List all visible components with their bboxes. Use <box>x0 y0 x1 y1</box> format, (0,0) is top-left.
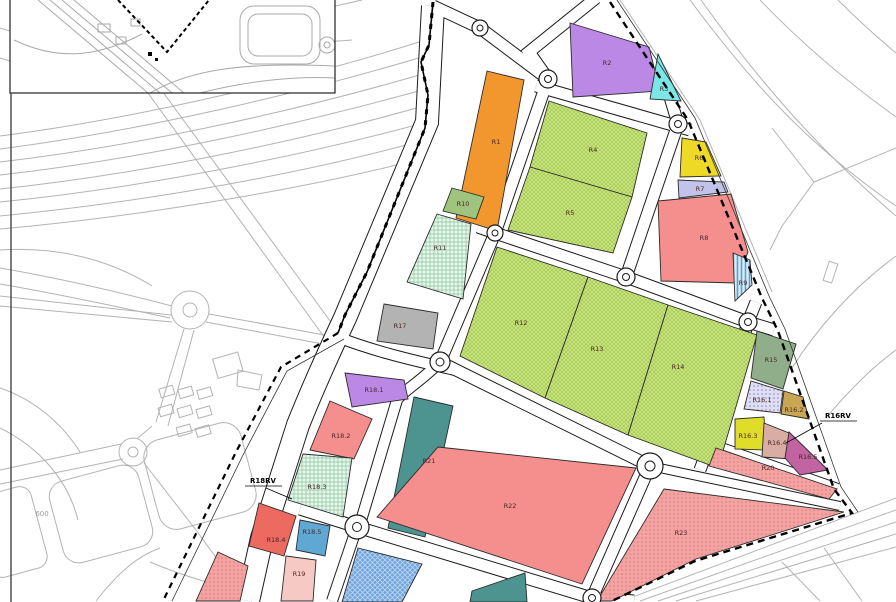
parcel-label-R16.5: R16.5 <box>799 453 818 461</box>
roundabout <box>545 76 552 83</box>
parcel-label-R12: R12 <box>515 319 528 327</box>
parcel-label-R9: R9 <box>739 279 748 287</box>
parcel-label-R3: R3 <box>660 85 669 93</box>
roundabout <box>745 319 752 326</box>
zoning-plan-map: R1R2R3R4R5R6R7R8R9R10R11R12R13R14R15R16.… <box>0 0 896 602</box>
roundabout <box>353 523 362 532</box>
parcel-label-R22: R22 <box>504 502 517 510</box>
parcel-label-R13: R13 <box>591 345 604 353</box>
parcel-R18.5 <box>296 520 330 556</box>
parcel-label-R14: R14 <box>672 363 685 371</box>
parcel-label-R2: R2 <box>603 59 612 67</box>
parcel-RX2 <box>470 573 527 602</box>
parcel-R3 <box>650 54 681 101</box>
parcel-label-R10: R10 <box>457 200 470 208</box>
parcel-label-R16.3: R16.3 <box>739 432 758 440</box>
parcel-label-R18.3: R18.3 <box>308 483 327 491</box>
parcel-label-R7: R7 <box>696 185 705 193</box>
parcel-label-R16.1: R16.1 <box>753 396 772 404</box>
parcel-R9 <box>733 253 752 301</box>
parcel-label-R1: R1 <box>492 138 501 146</box>
building-cluster <box>149 352 257 446</box>
r18rv-label: R18RV <box>250 477 277 485</box>
roundabout <box>623 274 630 281</box>
parcel-label-R18.5: R18.5 <box>303 528 322 536</box>
parcel-label-R21: R21 <box>423 457 436 465</box>
parcel-label-R5: R5 <box>566 209 575 217</box>
parcel-RX3 <box>196 552 248 601</box>
parcel-R2 <box>570 23 660 97</box>
parcel-label-R17: R17 <box>394 322 407 330</box>
parcel-R17 <box>377 304 438 349</box>
parcel-label-R18.2: R18.2 <box>332 432 351 440</box>
inset-map <box>10 0 335 93</box>
parcel-label-R20: R20 <box>762 464 775 472</box>
roundabout <box>492 230 498 236</box>
parcel-label-R16.4: R16.4 <box>768 439 787 447</box>
roundabout <box>436 358 444 366</box>
parcel-RX1 <box>342 548 422 602</box>
parcel-label-R18.4: R18.4 <box>267 536 286 544</box>
roundabout <box>589 595 596 602</box>
roundabout <box>645 461 655 471</box>
parcel-label-R18.1: R18.1 <box>365 386 384 394</box>
zoning-plan-canvas: R1R2R3R4R5R6R7R8R9R10R11R12R13R14R15R16.… <box>0 0 896 602</box>
parcel-label-R11: R11 <box>434 244 447 252</box>
parcel-label-R15: R15 <box>765 356 778 364</box>
roundabout <box>477 25 483 31</box>
parcel-R11 <box>407 214 471 299</box>
elevation-600: 600 <box>35 510 48 518</box>
r16rv-label: R16RV <box>825 412 852 420</box>
parcel-R18.2 <box>310 401 372 459</box>
roundabout <box>675 121 682 128</box>
parcel-label-R8: R8 <box>700 234 709 242</box>
parcel-R18.4 <box>249 503 296 556</box>
parcel-label-R6: R6 <box>695 154 704 162</box>
parcel-label-R23: R23 <box>675 529 688 537</box>
parcel-label-R4: R4 <box>589 146 598 154</box>
parcel-label-R19: R19 <box>293 570 306 578</box>
parcel-label-R16.2: R16.2 <box>785 406 804 414</box>
parcel-R19 <box>281 556 316 601</box>
